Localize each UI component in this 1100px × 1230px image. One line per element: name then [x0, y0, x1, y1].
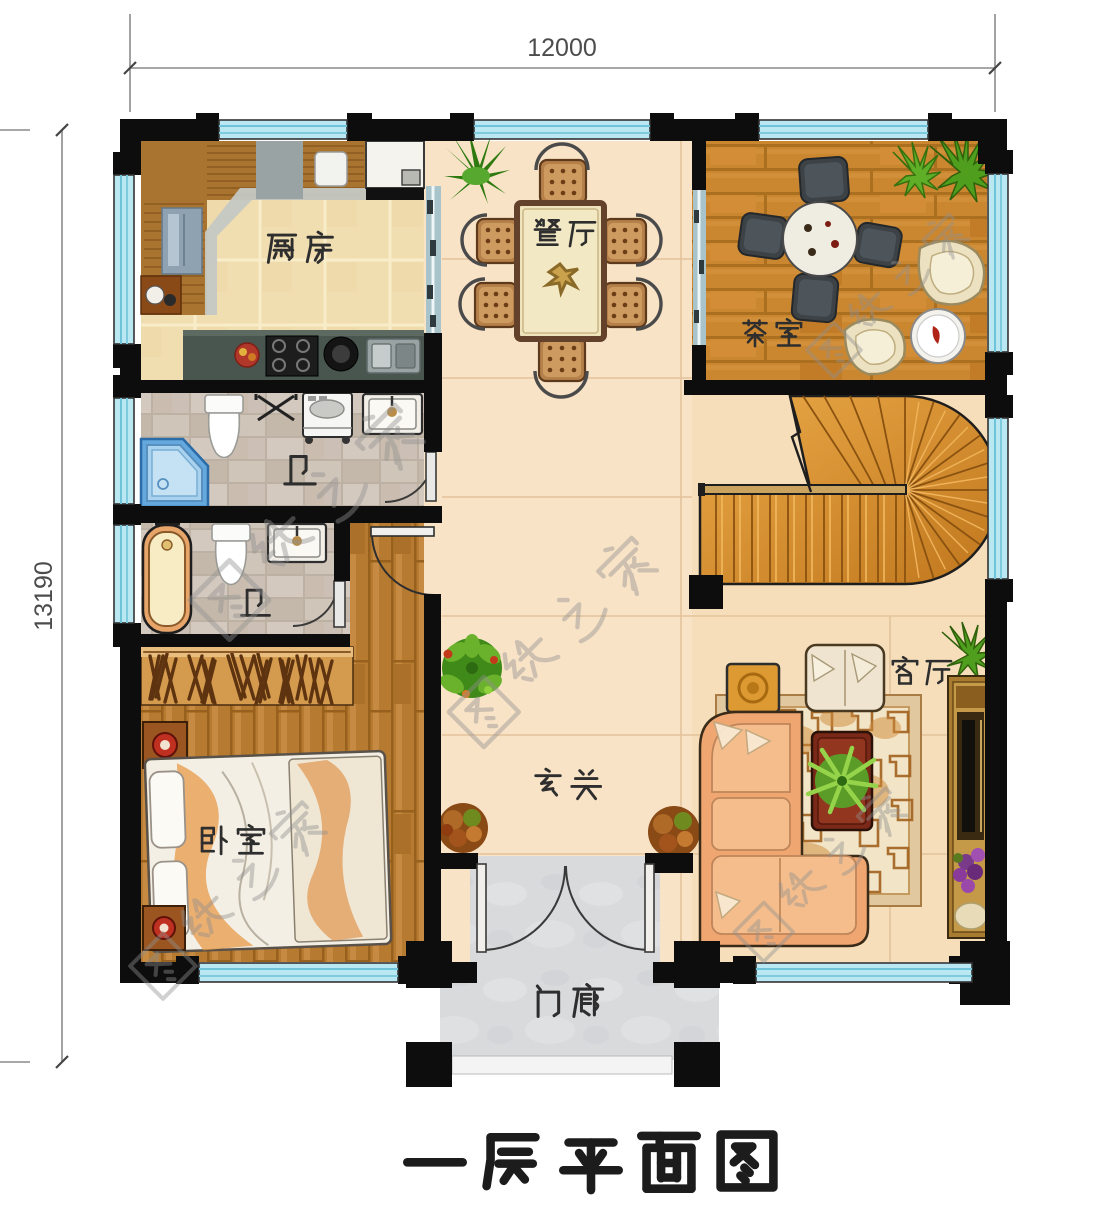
svg-text:13190: 13190: [30, 561, 58, 631]
svg-text:12000: 12000: [527, 34, 597, 62]
